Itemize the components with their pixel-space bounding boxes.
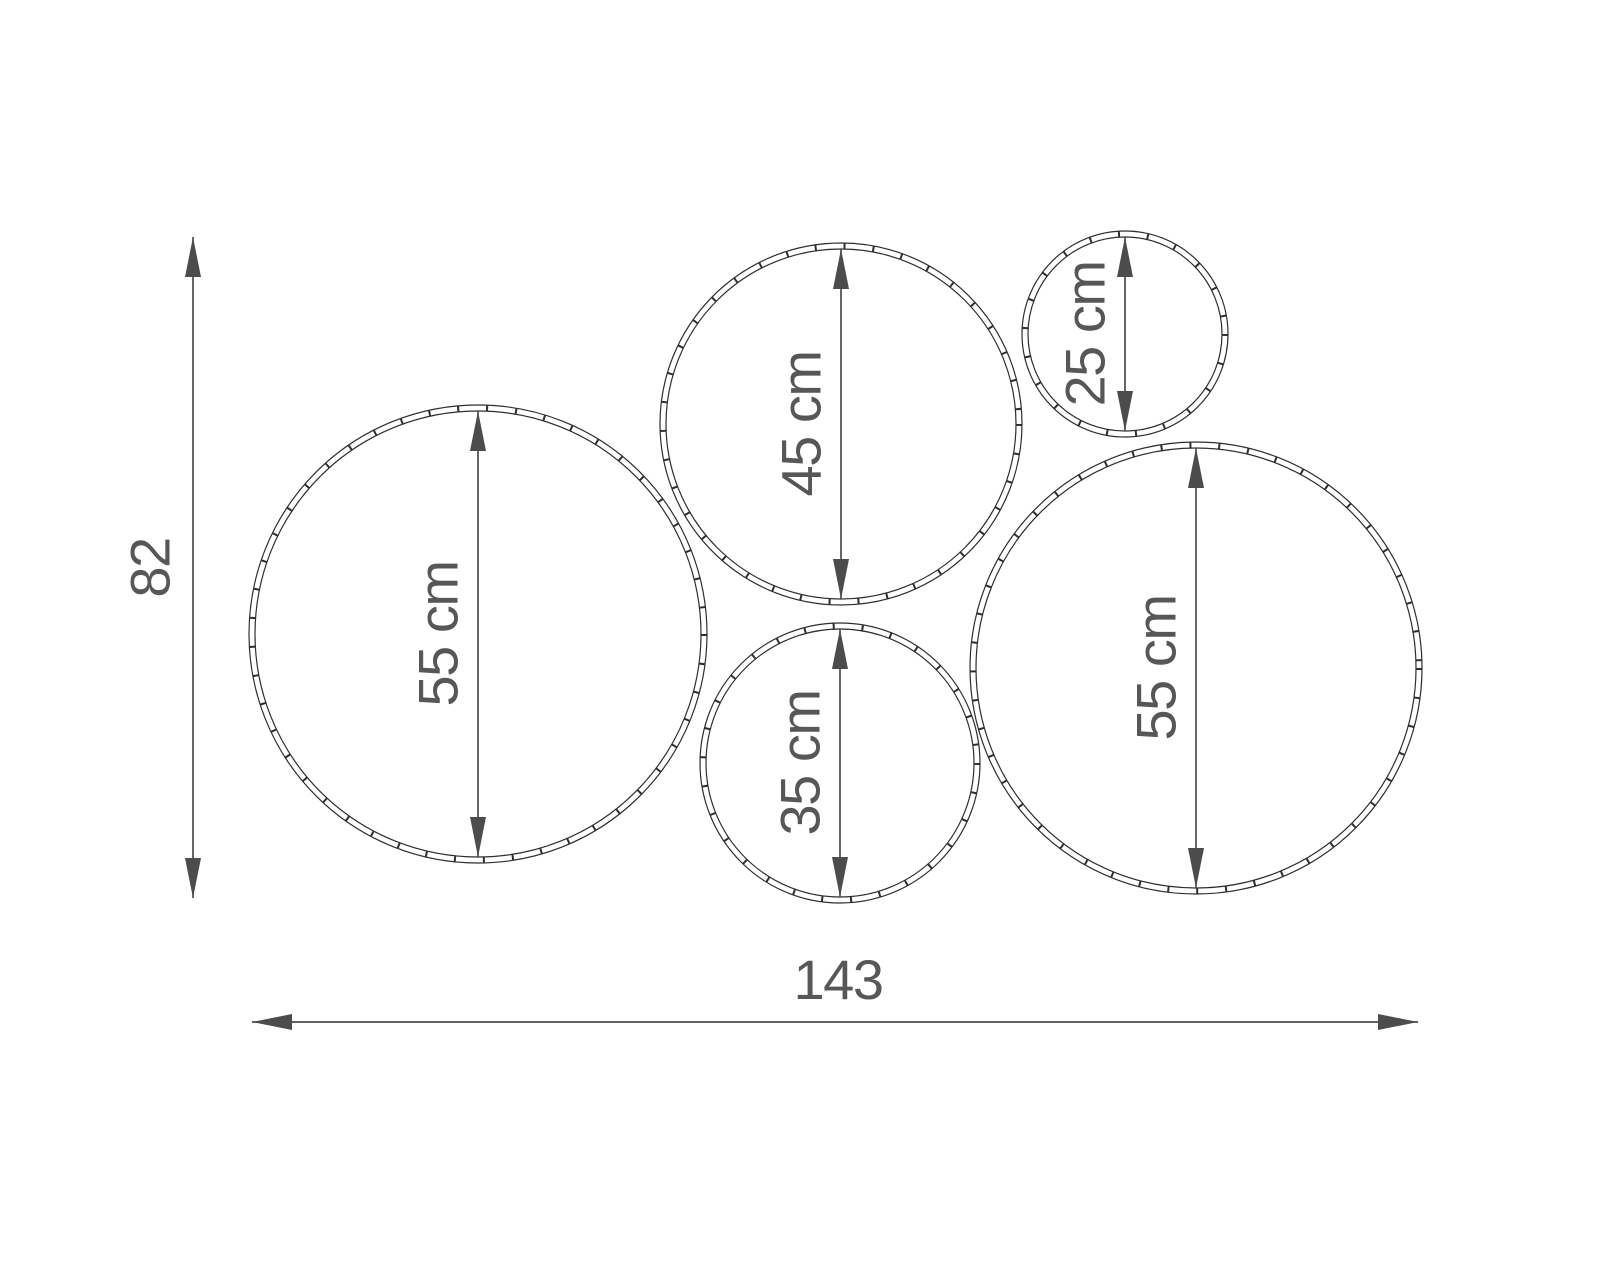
- dimension-arrowhead: [1378, 1014, 1418, 1030]
- overall-height-label: 82: [119, 538, 182, 597]
- dimension-arrowhead: [1188, 448, 1204, 488]
- dimension-arrowhead: [832, 629, 848, 669]
- dimension-arrowhead: [470, 411, 486, 451]
- dimension-drawing: 55 cm45 cm25 cm35 cm55 cm82143: [0, 0, 1600, 1280]
- technical-drawing-canvas: 55 cm45 cm25 cm35 cm55 cm82143: [0, 0, 1600, 1280]
- dimension-arrowhead: [252, 1014, 292, 1030]
- circle-35-bottom: 35 cm: [700, 623, 980, 903]
- diameter-label: 35 cm: [769, 691, 832, 836]
- overall-height-dimension: 82: [119, 237, 201, 898]
- dimension-arrowhead: [833, 249, 849, 289]
- circle-55-left: 55 cm: [249, 405, 707, 863]
- dimension-arrowhead: [1117, 391, 1133, 431]
- circle-45-top: 45 cm: [660, 243, 1022, 605]
- overall-width-dimension: 143: [252, 948, 1418, 1030]
- dimension-arrowhead: [832, 857, 848, 897]
- dimension-arrowhead: [1117, 237, 1133, 277]
- diameter-label: 25 cm: [1054, 262, 1117, 407]
- diameter-label: 55 cm: [1125, 596, 1188, 741]
- circle-25-small: 25 cm: [1022, 231, 1228, 437]
- overall-width-label: 143: [794, 948, 883, 1011]
- diameter-label: 55 cm: [407, 562, 470, 707]
- dimension-arrowhead: [185, 858, 201, 898]
- dimension-arrowhead: [833, 559, 849, 599]
- dimension-arrowhead: [1188, 848, 1204, 888]
- dimension-arrowhead: [185, 237, 201, 277]
- circle-55-right: 55 cm: [970, 442, 1422, 894]
- dimension-arrowhead: [470, 817, 486, 857]
- diameter-label: 45 cm: [770, 352, 833, 497]
